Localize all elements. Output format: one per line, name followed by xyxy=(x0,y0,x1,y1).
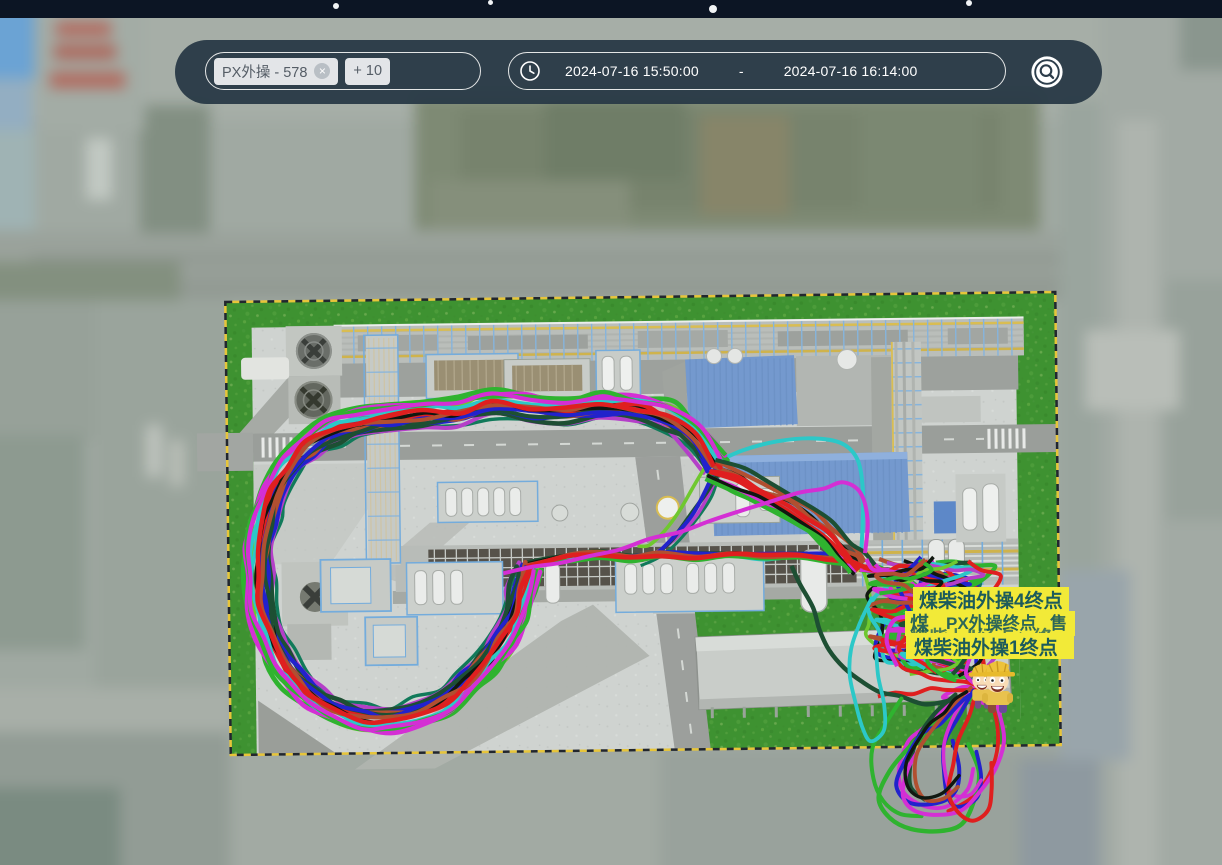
svg-text:煤柴油外操4终点: 煤柴油外操4终点 xyxy=(919,589,1063,612)
svg-text:售: 售 xyxy=(1050,613,1067,633)
svg-text:煤柴油外操1终点: 煤柴油外操1终点 xyxy=(914,636,1058,659)
